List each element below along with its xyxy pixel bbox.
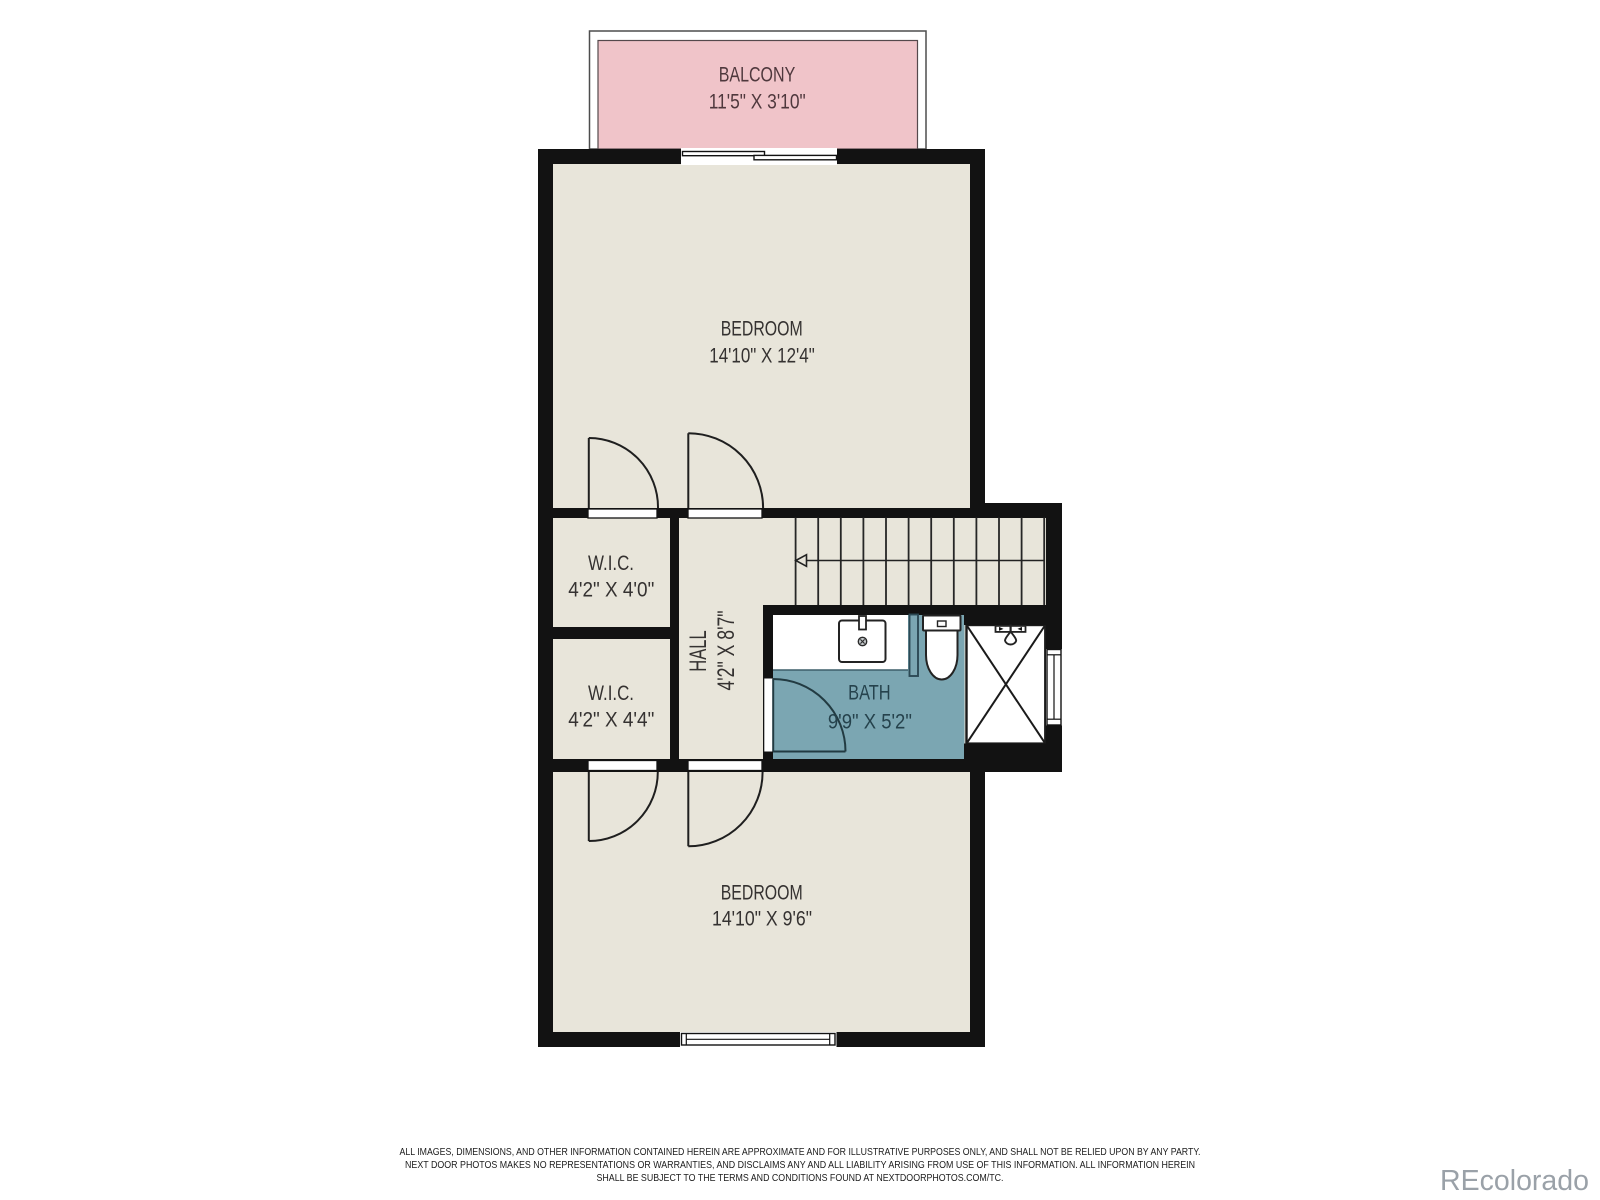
svg-text:W.I.C.: W.I.C. [588,682,634,705]
svg-text:11'5" X 3'10": 11'5" X 3'10" [709,91,806,114]
svg-text:BATH: BATH [848,681,891,704]
svg-text:SHALL BE SUBJECT TO THE TERMS: SHALL BE SUBJECT TO THE TERMS AND CONDIT… [597,1173,1004,1184]
svg-text:4'2" X 4'4": 4'2" X 4'4" [568,709,654,732]
svg-text:HALL: HALL [685,630,712,672]
svg-text:W.I.C.: W.I.C. [588,552,634,575]
svg-text:14'10" X 12'4": 14'10" X 12'4" [709,345,815,368]
svg-text:ALL IMAGES, DIMENSIONS, AND OT: ALL IMAGES, DIMENSIONS, AND OTHER INFORM… [400,1147,1201,1158]
svg-text:BALCONY: BALCONY [719,63,796,86]
svg-text:BEDROOM: BEDROOM [721,881,803,904]
svg-text:BEDROOM: BEDROOM [721,317,803,340]
svg-text:REcolorado: REcolorado [1440,1165,1589,1197]
svg-text:9'9" X 5'2": 9'9" X 5'2" [828,710,912,733]
svg-text:4'2" X 8'7": 4'2" X 8'7" [713,611,740,691]
svg-text:14'10" X 9'6": 14'10" X 9'6" [712,908,812,931]
svg-text:4'2" X 4'0": 4'2" X 4'0" [568,579,654,602]
svg-text:NEXT DOOR PHOTOS MAKES NO REPR: NEXT DOOR PHOTOS MAKES NO REPRESENTATION… [405,1160,1195,1171]
